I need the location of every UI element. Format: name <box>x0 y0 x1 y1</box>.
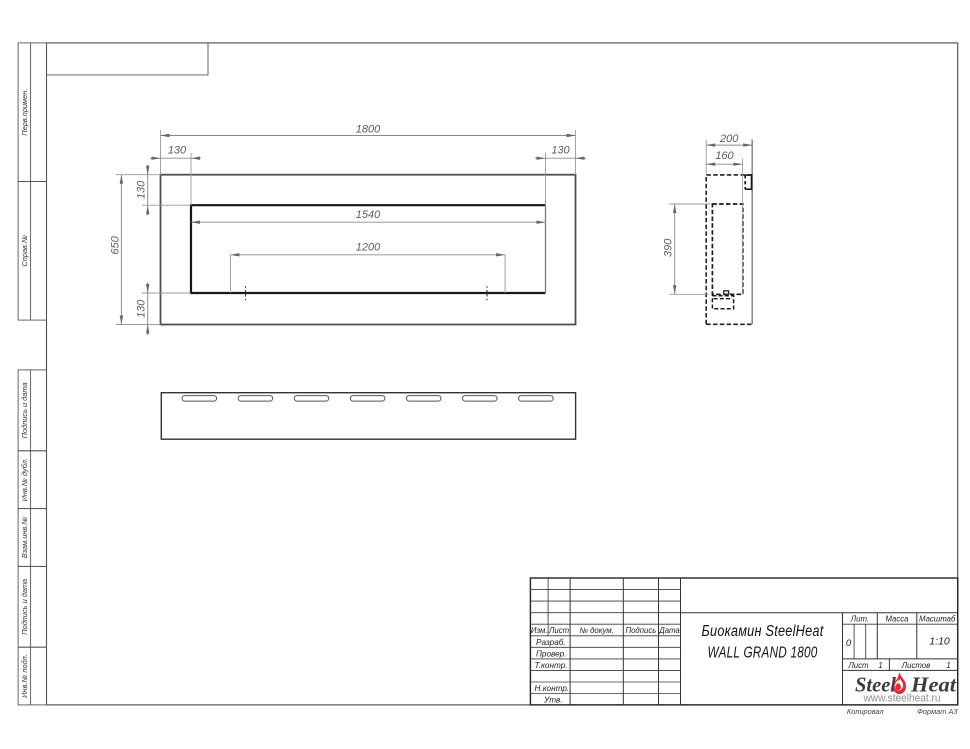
svg-text:Т.контр.: Т.контр. <box>535 661 568 670</box>
svg-text:130: 130 <box>136 299 148 318</box>
svg-text:Дата: Дата <box>658 626 680 635</box>
svg-text:Лист: Лист <box>847 661 869 670</box>
svg-text:Справ.№: Справ.№ <box>20 235 29 267</box>
svg-text:650: 650 <box>109 235 121 254</box>
svg-text:Подпись и дата: Подпись и дата <box>20 382 29 438</box>
svg-text:Инв.№ дубл.: Инв.№ дубл. <box>20 458 29 501</box>
svg-text:Подпись: Подпись <box>625 626 656 635</box>
svg-text:Разраб.: Разраб. <box>536 638 566 647</box>
svg-text:Копировал: Копировал <box>847 707 885 716</box>
svg-text:WALL GRAND 1800: WALL GRAND 1800 <box>708 645 818 662</box>
svg-text:Лист: Лист <box>548 626 570 635</box>
svg-text:Листов: Листов <box>901 661 930 670</box>
svg-text:Масштаб: Масштаб <box>919 615 956 624</box>
svg-text:130: 130 <box>168 145 187 157</box>
svg-text:Формат А3: Формат А3 <box>917 707 958 716</box>
svg-text:390: 390 <box>663 238 675 257</box>
svg-text:Масса: Масса <box>885 615 909 624</box>
svg-text:1800: 1800 <box>356 124 381 136</box>
svg-text:Изм.: Изм. <box>531 626 548 635</box>
svg-text:0: 0 <box>846 638 852 649</box>
svg-text:160: 160 <box>715 150 734 162</box>
svg-text:1540: 1540 <box>356 209 381 221</box>
svg-text:№ докум.: № докум. <box>580 626 614 635</box>
svg-text:130: 130 <box>551 145 570 157</box>
svg-text:Н.контр.: Н.контр. <box>535 684 570 693</box>
svg-text:Инв.№ подл.: Инв.№ подл. <box>20 654 29 698</box>
svg-text:1: 1 <box>878 661 882 670</box>
svg-text:Перв.примен.: Перв.примен. <box>20 89 29 136</box>
svg-text:1: 1 <box>946 661 950 670</box>
svg-text:Взам.инв.№: Взам.инв.№ <box>20 517 29 559</box>
svg-text:Провер.: Провер. <box>536 649 567 658</box>
svg-text:1200: 1200 <box>356 242 381 254</box>
svg-text:1:10: 1:10 <box>929 636 950 648</box>
svg-text:Лит.: Лит. <box>850 615 869 624</box>
svg-text:200: 200 <box>719 133 739 145</box>
svg-text:Подпись и дата: Подпись и дата <box>20 579 29 635</box>
svg-text:www.steelheat.ru: www.steelheat.ru <box>863 692 941 704</box>
svg-text:Утв.: Утв. <box>543 696 563 705</box>
svg-text:130: 130 <box>136 180 148 199</box>
svg-text:Биокамин SteelHeat: Биокамин SteelHeat <box>702 623 824 640</box>
